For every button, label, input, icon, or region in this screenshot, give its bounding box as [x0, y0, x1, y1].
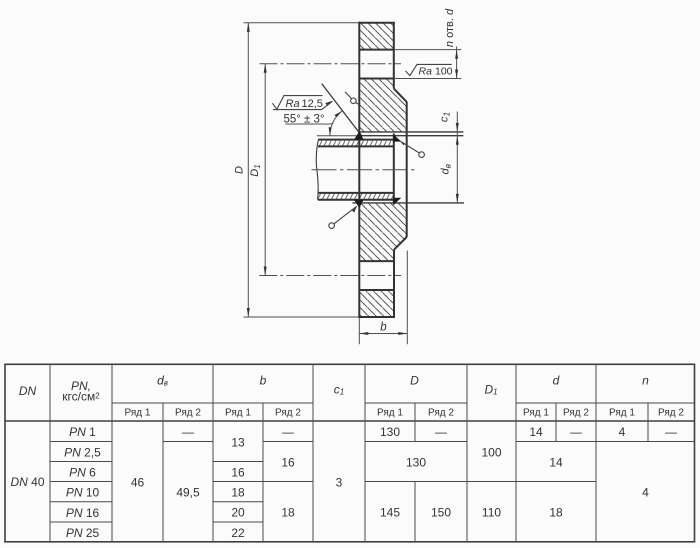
- svg-text:4: 4: [642, 486, 649, 500]
- svg-text:dв: dв: [440, 163, 453, 174]
- svg-text:55° ± 3°: 55° ± 3°: [283, 113, 324, 125]
- svg-text:Ряд 1: Ряд 1: [125, 408, 151, 419]
- svg-text:46: 46: [131, 475, 145, 489]
- svg-text:100: 100: [435, 65, 453, 77]
- svg-text:b: b: [260, 374, 267, 388]
- svg-text:18: 18: [281, 506, 295, 520]
- svg-text:Ряд 1: Ряд 1: [225, 408, 251, 419]
- svg-text:12,5: 12,5: [302, 98, 323, 110]
- svg-text:d: d: [553, 374, 560, 388]
- svg-text:18: 18: [231, 486, 245, 500]
- svg-text:dв: dв: [157, 374, 168, 388]
- svg-text:Ряд 2: Ряд 2: [275, 408, 301, 419]
- svg-text:PN 1: PN 1: [69, 425, 96, 439]
- svg-text:—: —: [182, 425, 194, 439]
- svg-text:Ra: Ra: [286, 98, 300, 110]
- svg-text:3: 3: [336, 475, 343, 489]
- svg-text:Ряд 1: Ряд 1: [523, 408, 549, 419]
- svg-text:D1: D1: [484, 383, 497, 397]
- svg-text:22: 22: [231, 526, 245, 540]
- svg-text:D: D: [233, 166, 245, 174]
- svg-text:кгс/см2: кгс/см2: [62, 390, 100, 404]
- svg-text:14: 14: [549, 455, 563, 469]
- svg-text:n отв. d: n отв. d: [444, 8, 456, 47]
- svg-text:D: D: [410, 374, 419, 388]
- svg-text:130: 130: [380, 425, 400, 439]
- svg-text:Ряд 2: Ряд 2: [428, 408, 454, 419]
- svg-text:PN 10: PN 10: [66, 486, 100, 500]
- svg-text:13: 13: [231, 435, 245, 449]
- svg-text:16: 16: [281, 455, 295, 469]
- svg-text:Ряд 1: Ряд 1: [377, 408, 403, 419]
- svg-text:4: 4: [619, 425, 626, 439]
- svg-text:Ряд 2: Ряд 2: [658, 408, 684, 419]
- svg-text:—: —: [282, 425, 294, 439]
- svg-text:16: 16: [231, 465, 245, 479]
- svg-text:PN 2,5: PN 2,5: [64, 446, 101, 460]
- svg-text:—: —: [435, 425, 447, 439]
- svg-text:—: —: [570, 425, 582, 439]
- svg-text:—: —: [665, 425, 677, 439]
- svg-text:PN 16: PN 16: [66, 506, 100, 520]
- svg-text:Ra: Ra: [419, 65, 433, 77]
- svg-text:b: b: [380, 322, 387, 334]
- svg-text:20: 20: [231, 506, 245, 520]
- svg-text:18: 18: [549, 506, 563, 520]
- svg-text:Ряд 1: Ряд 1: [609, 408, 635, 419]
- svg-text:DN: DN: [19, 384, 37, 398]
- svg-text:100: 100: [481, 445, 501, 459]
- svg-text:n: n: [642, 374, 649, 388]
- svg-text:D1: D1: [249, 164, 262, 176]
- svg-text:c1: c1: [334, 383, 344, 397]
- svg-text:PN 25: PN 25: [66, 526, 100, 540]
- svg-text:150: 150: [431, 506, 451, 520]
- svg-text:14: 14: [529, 425, 543, 439]
- svg-text:Ряд 2: Ряд 2: [175, 408, 201, 419]
- svg-text:PN 6: PN 6: [69, 466, 96, 480]
- svg-text:c1: c1: [438, 112, 451, 123]
- svg-text:49,5: 49,5: [176, 486, 200, 500]
- svg-text:145: 145: [380, 506, 400, 520]
- svg-text:DN 40: DN 40: [10, 475, 44, 489]
- svg-text:Ряд 2: Ряд 2: [563, 408, 589, 419]
- svg-text:110: 110: [482, 506, 501, 520]
- svg-text:130: 130: [406, 455, 426, 469]
